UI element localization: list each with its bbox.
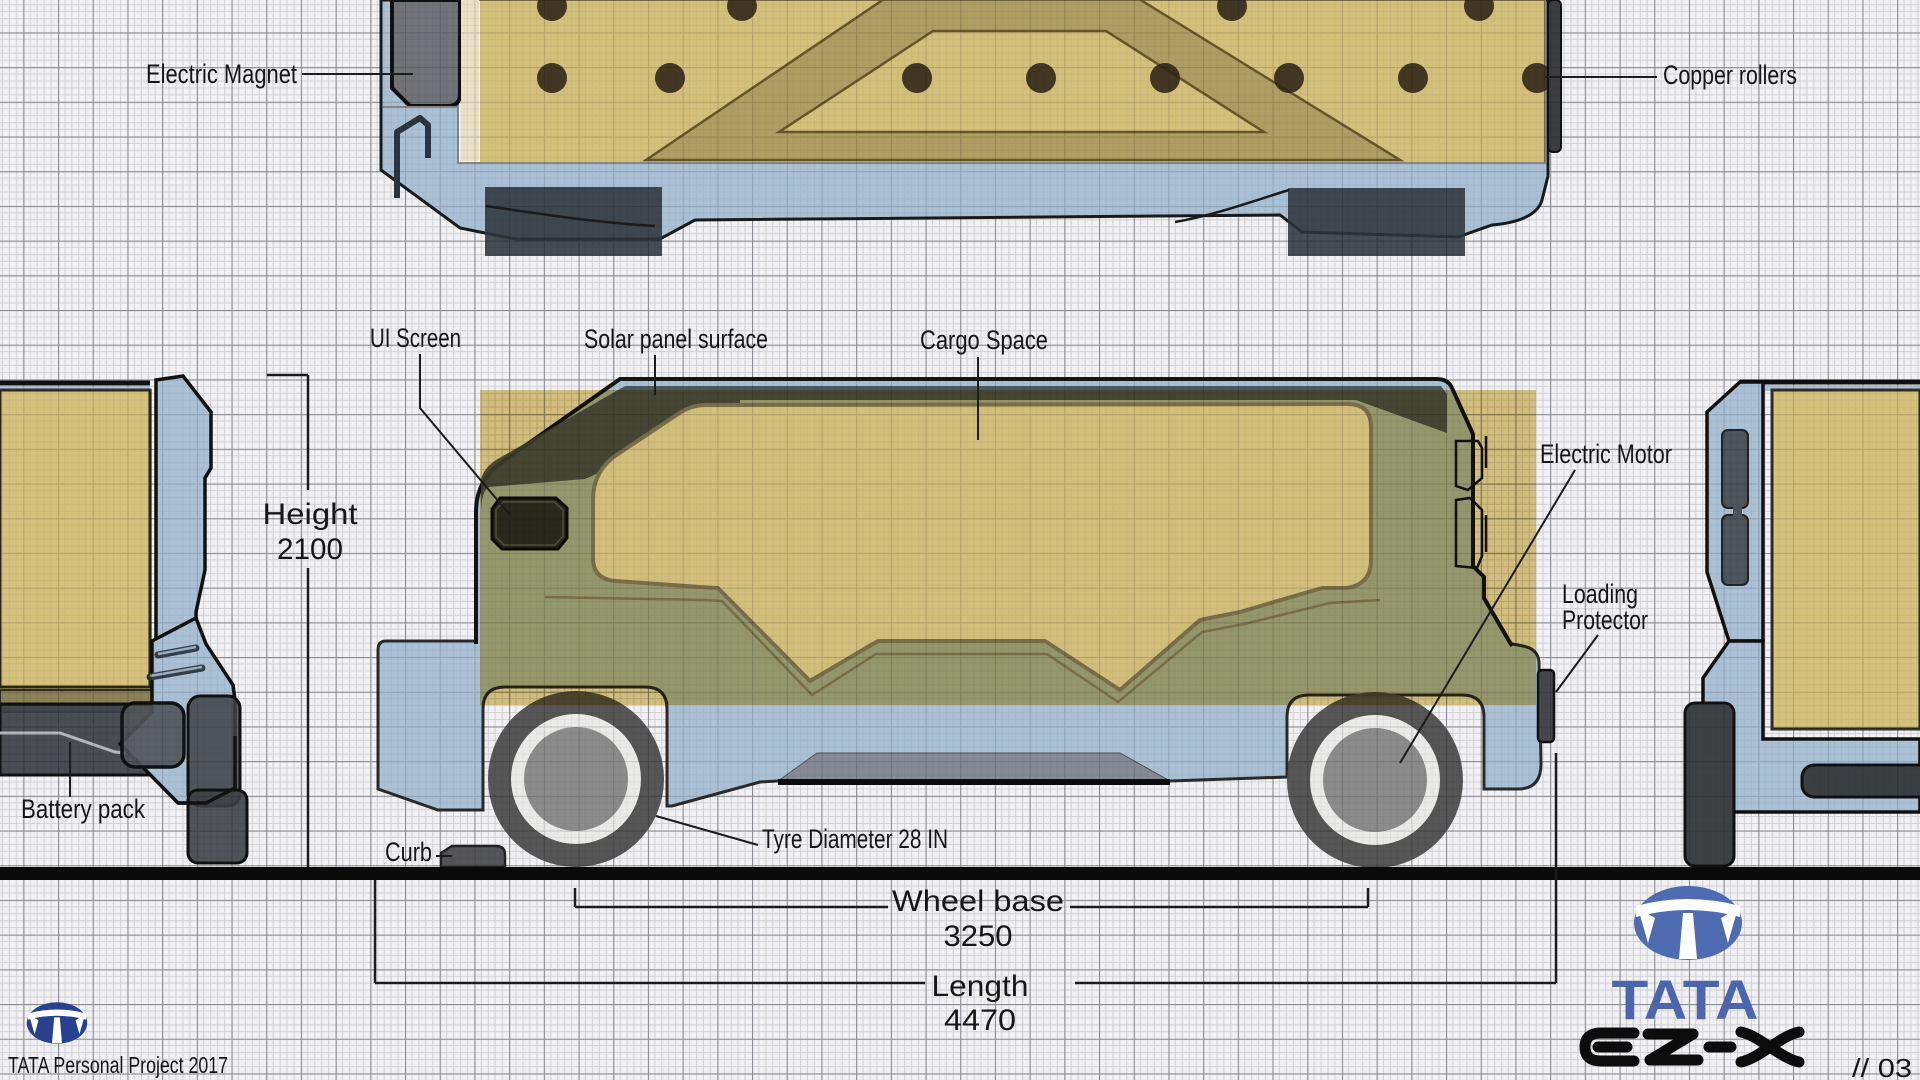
- svg-text:Electric Magnet: Electric Magnet: [146, 59, 297, 89]
- svg-text:4470: 4470: [944, 1004, 1016, 1037]
- svg-text:Height: Height: [263, 498, 359, 531]
- svg-text:// 03: // 03: [1852, 1053, 1912, 1080]
- svg-text:2100: 2100: [277, 533, 343, 566]
- svg-text:Copper rollers: Copper rollers: [1663, 60, 1797, 90]
- svg-text:3250: 3250: [944, 920, 1013, 953]
- svg-text:Cargo Space: Cargo Space: [920, 325, 1048, 355]
- svg-text:Length: Length: [932, 970, 1029, 1003]
- svg-text:Tyre Diameter 28 IN: Tyre Diameter 28 IN: [762, 824, 948, 854]
- svg-text:Electric Motor: Electric Motor: [1540, 439, 1672, 469]
- svg-text:Protector: Protector: [1562, 605, 1648, 635]
- svg-text:Curb: Curb: [385, 837, 432, 867]
- svg-text:TATA: TATA: [1612, 968, 1759, 1031]
- svg-text:Wheel base: Wheel base: [892, 885, 1064, 918]
- svg-text:Battery pack: Battery pack: [21, 794, 145, 824]
- svg-text:TATA Personal Project 2017: TATA Personal Project 2017: [8, 1052, 228, 1078]
- svg-text:UI Screen: UI Screen: [370, 323, 461, 353]
- svg-text:Solar panel surface: Solar panel surface: [584, 324, 768, 354]
